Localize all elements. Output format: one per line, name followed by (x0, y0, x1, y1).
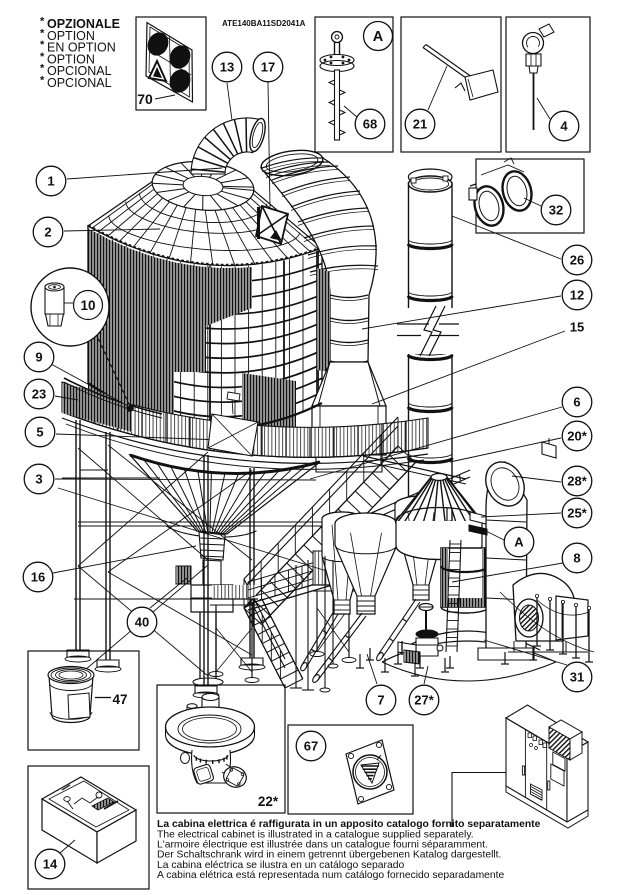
svg-text:8: 8 (573, 551, 580, 566)
svg-text:2: 2 (44, 225, 51, 240)
svg-text:*: * (40, 39, 45, 51)
svg-text:68: 68 (363, 117, 377, 132)
svg-text:21: 21 (413, 117, 427, 132)
svg-text:20*: 20* (567, 429, 587, 444)
svg-text:*: * (40, 75, 45, 87)
svg-text:31: 31 (570, 670, 584, 685)
svg-text:4: 4 (560, 119, 568, 134)
svg-text:15: 15 (570, 320, 584, 335)
svg-text:40: 40 (135, 615, 149, 630)
svg-text:23: 23 (32, 387, 46, 402)
svg-text:17: 17 (261, 60, 275, 75)
svg-text:10: 10 (80, 298, 95, 313)
svg-text:25*: 25* (567, 506, 587, 521)
svg-text:16: 16 (31, 570, 45, 585)
svg-text:ATE140BA11SD2041A: ATE140BA11SD2041A (222, 19, 306, 28)
svg-text:*: * (40, 27, 45, 39)
svg-text:6: 6 (573, 395, 580, 410)
svg-text:27*: 27* (414, 693, 434, 708)
svg-text:67: 67 (304, 739, 318, 754)
svg-text:5: 5 (36, 425, 43, 440)
svg-text:12: 12 (570, 288, 584, 303)
svg-text:OPCIONAL: OPCIONAL (47, 76, 112, 90)
svg-text:1: 1 (47, 174, 54, 189)
svg-text:7: 7 (377, 693, 384, 708)
svg-text:70: 70 (137, 91, 153, 107)
svg-text:*: * (40, 16, 45, 28)
svg-text:14: 14 (43, 857, 58, 872)
svg-text:26: 26 (570, 253, 584, 268)
svg-text:9: 9 (35, 350, 42, 365)
svg-text:*: * (40, 63, 45, 75)
svg-text:22*: 22* (258, 794, 279, 809)
svg-text:3: 3 (35, 472, 42, 487)
svg-text:*: * (40, 51, 45, 63)
svg-text:A: A (373, 29, 384, 45)
svg-text:47: 47 (113, 692, 128, 707)
svg-text:32: 32 (549, 203, 563, 218)
svg-text:A: A (514, 535, 524, 550)
svg-text:13: 13 (220, 60, 234, 75)
svg-text:A cabina elétrica está represe: A cabina elétrica está representada num … (157, 870, 505, 881)
svg-text:28*: 28* (567, 474, 587, 489)
